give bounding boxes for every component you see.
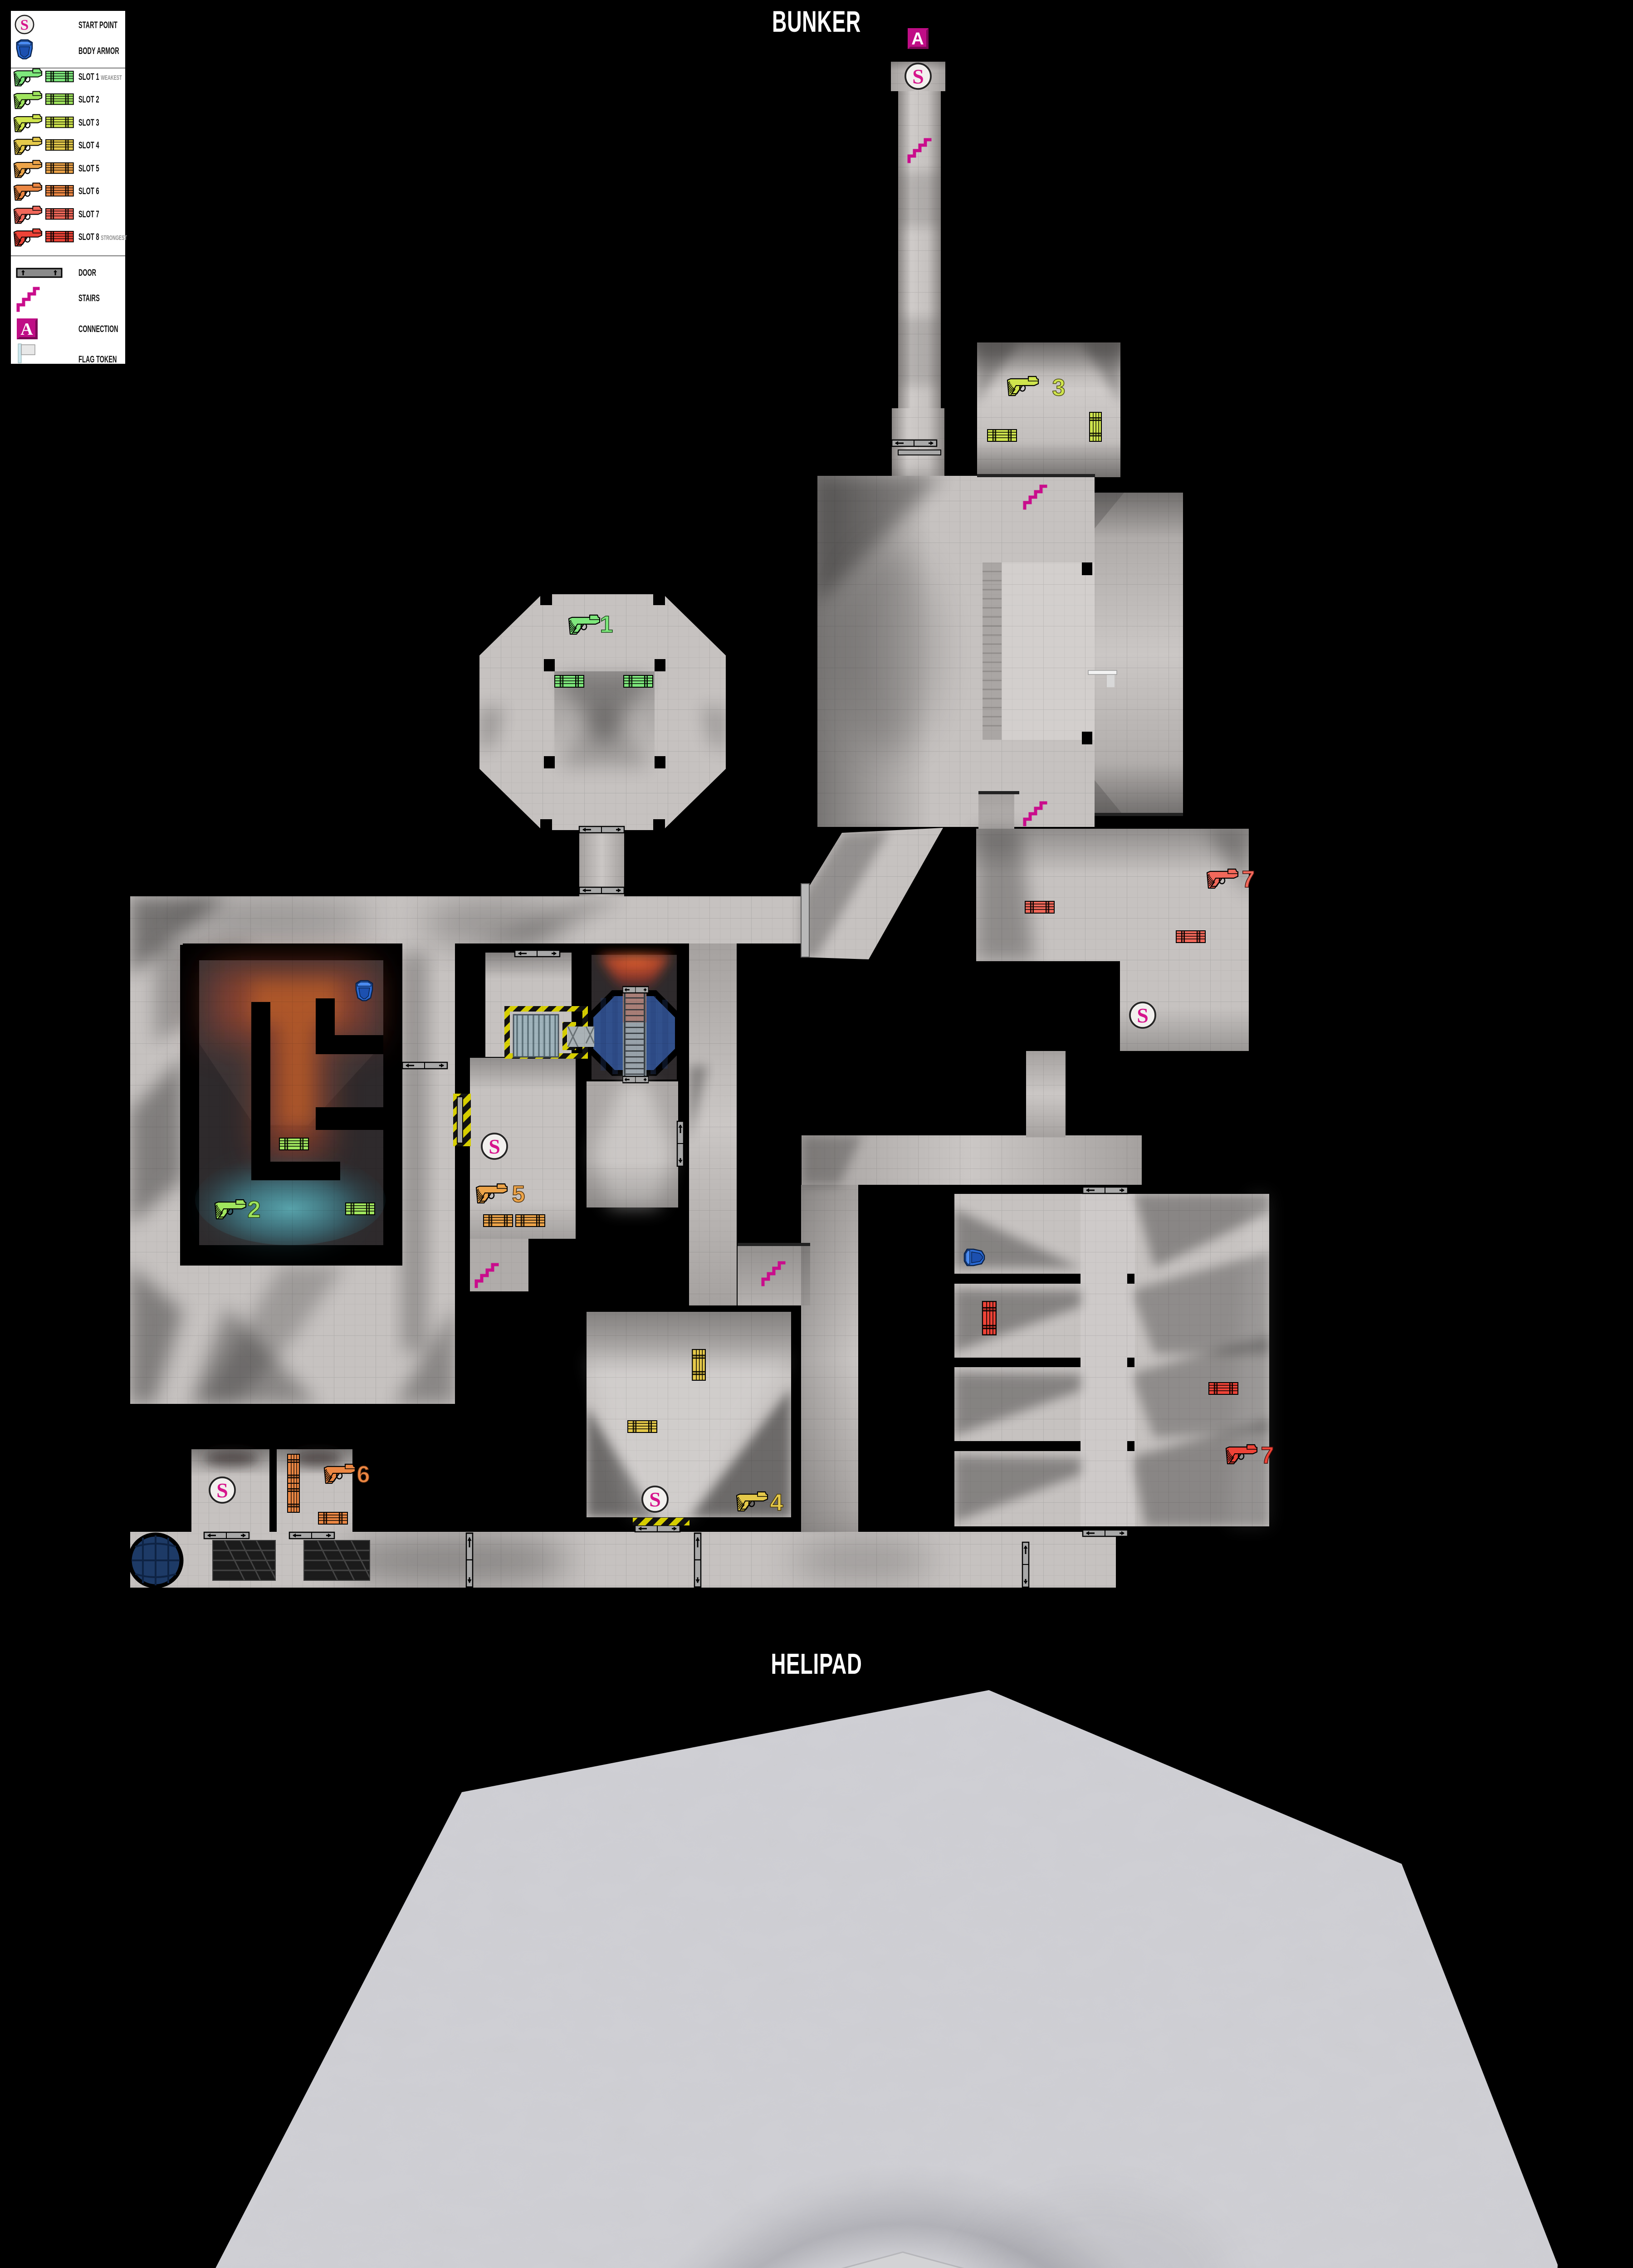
svg-text:4: 4: [770, 1490, 783, 1516]
svg-text:6: 6: [357, 1461, 370, 1488]
svg-text:2: 2: [248, 1197, 261, 1223]
svg-text:3: 3: [1052, 375, 1066, 401]
svg-text:SLOT 6: SLOT 6: [78, 186, 99, 196]
svg-text:CONNECTION: CONNECTION: [78, 323, 118, 334]
svg-text:A: A: [20, 320, 33, 339]
svg-text:STAIRS: STAIRS: [78, 293, 100, 303]
svg-text:7: 7: [1261, 1442, 1274, 1469]
svg-text:BODY ARMOR: BODY ARMOR: [78, 45, 119, 56]
svg-text:SLOT 5: SLOT 5: [78, 163, 99, 174]
svg-text:START POINT: START POINT: [78, 20, 117, 30]
svg-text:SLOT 4: SLOT 4: [78, 140, 99, 151]
svg-text:DOOR: DOOR: [78, 267, 96, 278]
svg-text:HELIPAD: HELIPAD: [771, 1647, 862, 1680]
svg-text:SLOT 7: SLOT 7: [78, 209, 99, 220]
svg-text:5: 5: [512, 1181, 525, 1207]
svg-text:FLAG TOKEN: FLAG TOKEN: [78, 354, 117, 365]
svg-text:BUNKER: BUNKER: [772, 5, 861, 38]
svg-text:1: 1: [600, 611, 613, 638]
svg-text:7: 7: [1242, 866, 1255, 893]
svg-text:SLOT 2: SLOT 2: [78, 94, 99, 105]
svg-text:SLOT 3: SLOT 3: [78, 117, 99, 128]
